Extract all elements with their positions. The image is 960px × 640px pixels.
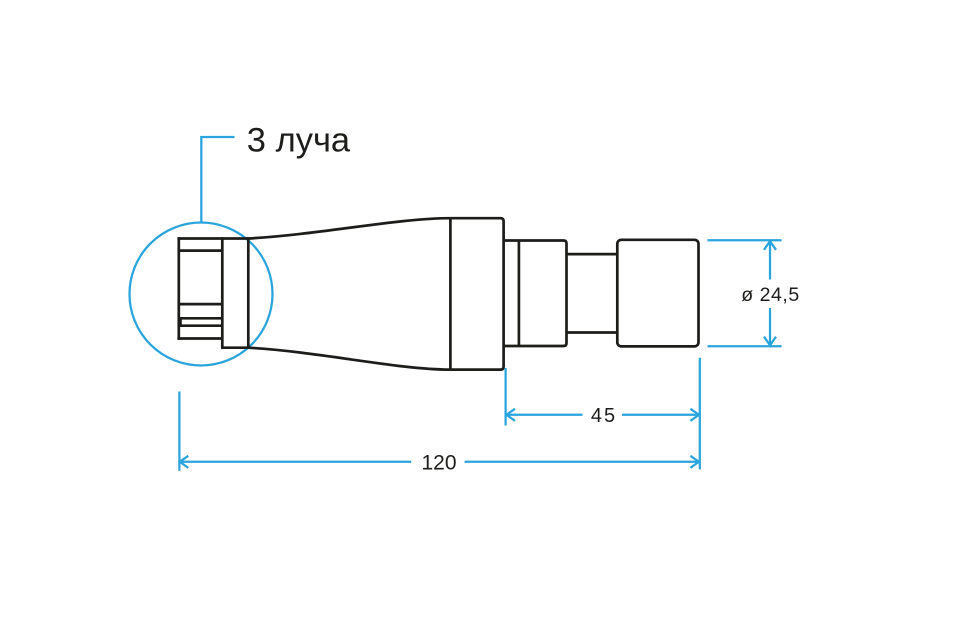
svg-text:3 луча: 3 луча [247, 121, 351, 159]
svg-text:45: 45 [591, 405, 617, 427]
svg-text:ø 24,5: ø 24,5 [741, 284, 800, 306]
svg-text:120: 120 [421, 451, 456, 474]
